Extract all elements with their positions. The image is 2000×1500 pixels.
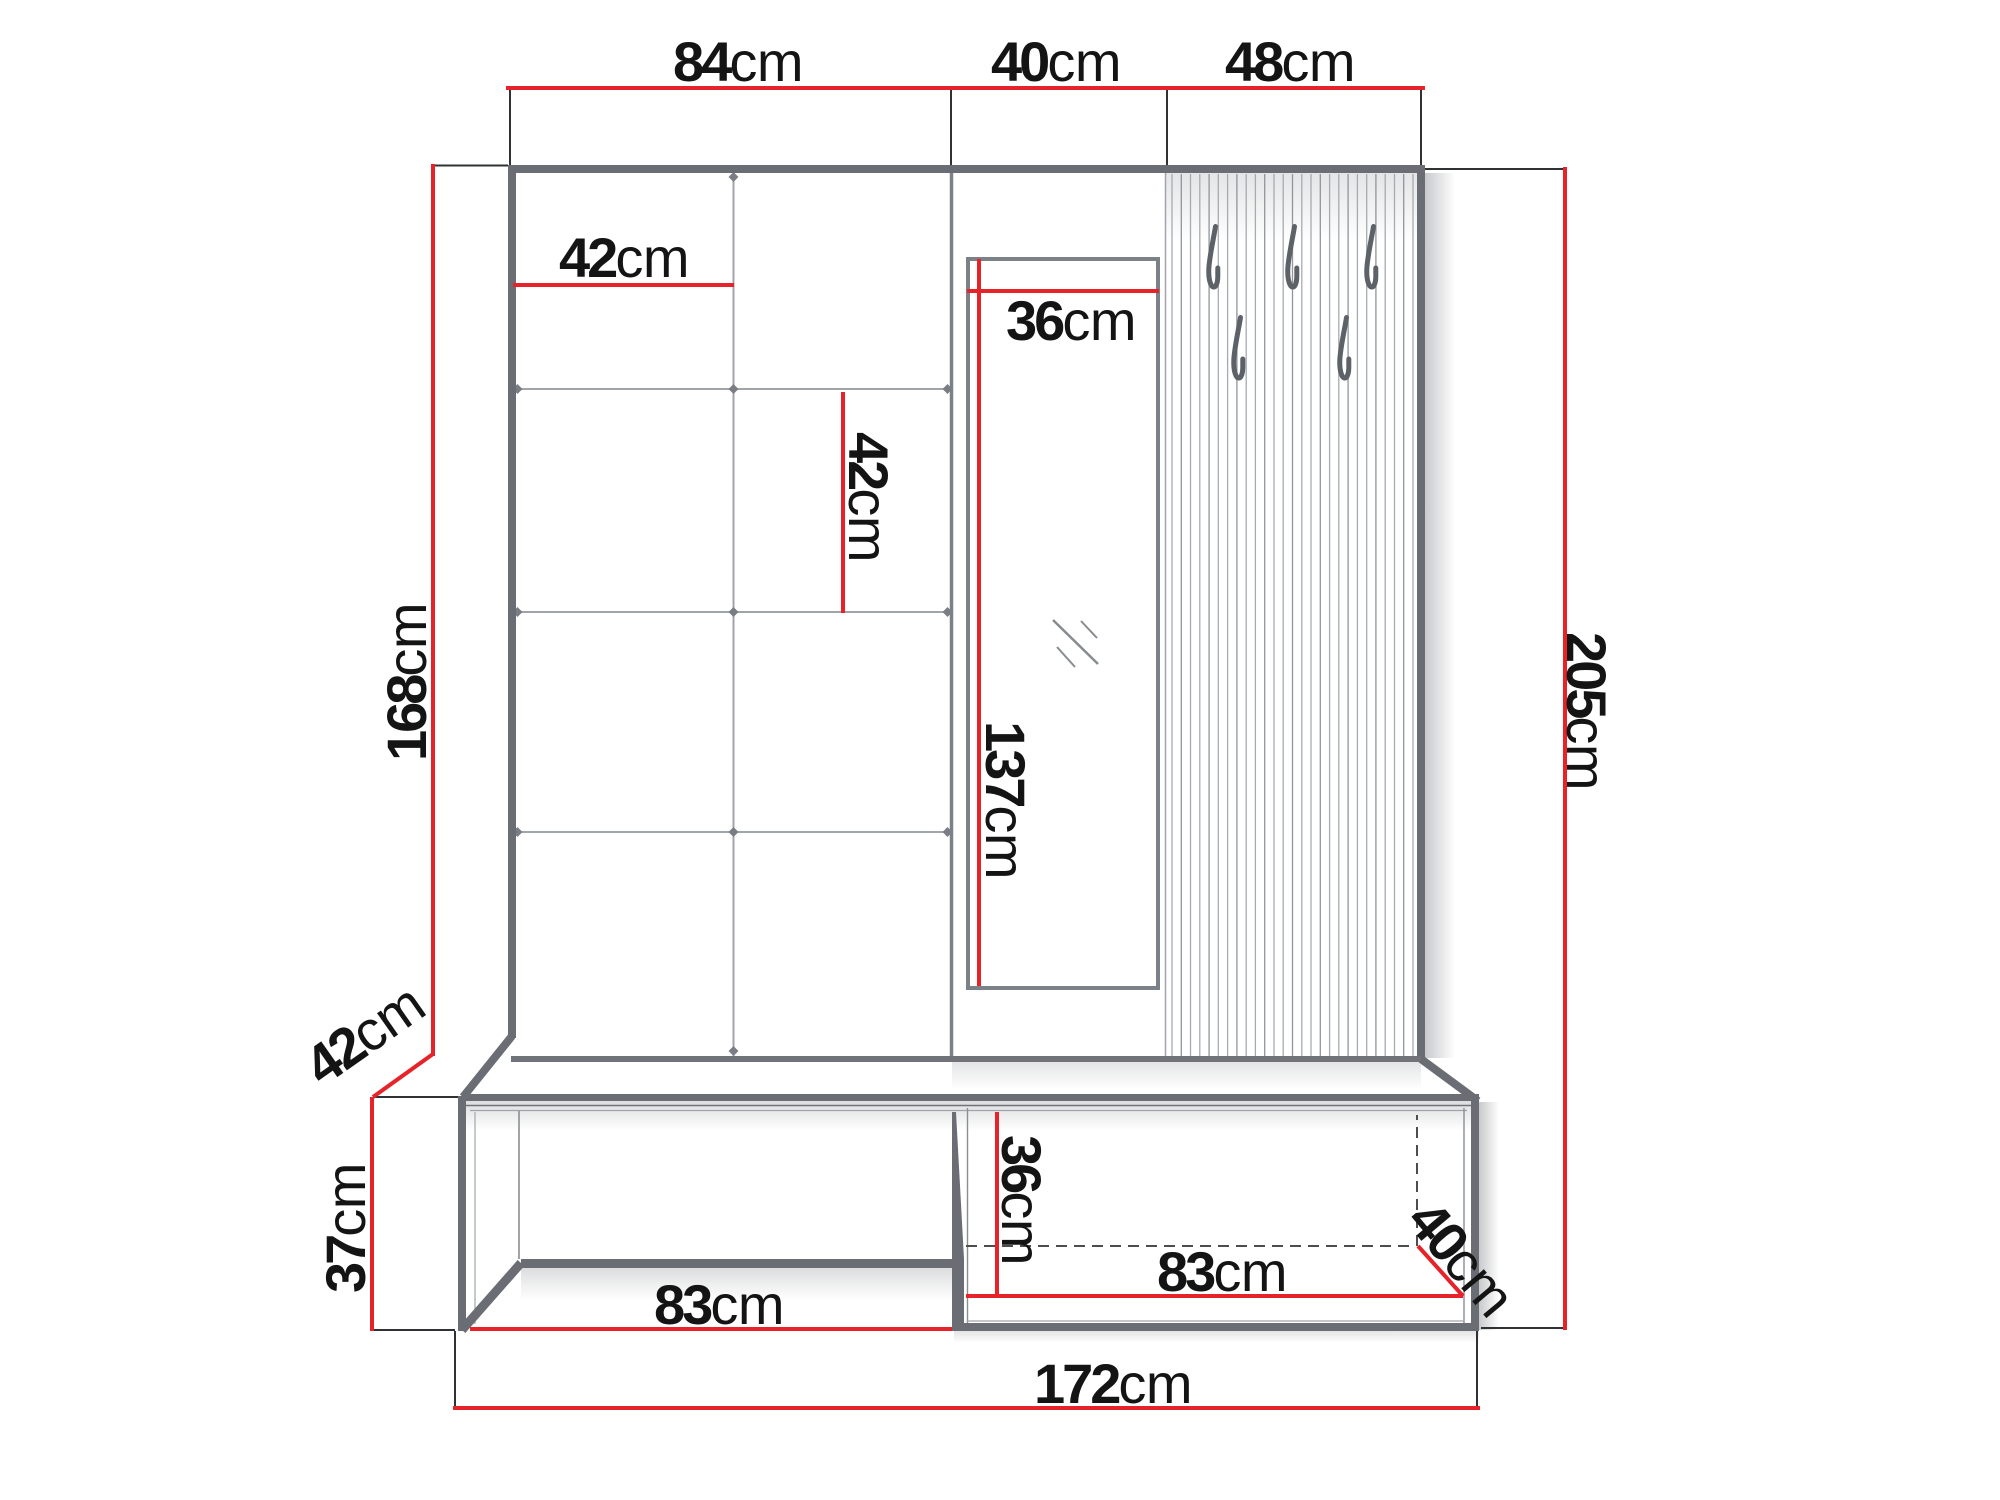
svg-text:48cm: 48cm	[1225, 30, 1355, 93]
svg-text:83cm: 83cm	[1157, 1240, 1287, 1303]
svg-text:42cm: 42cm	[559, 226, 689, 289]
svg-text:36cm: 36cm	[1006, 289, 1136, 352]
svg-text:83cm: 83cm	[654, 1273, 784, 1336]
svg-text:172cm: 172cm	[1034, 1352, 1192, 1415]
svg-text:37cm: 37cm	[314, 1163, 377, 1293]
svg-text:168cm: 168cm	[375, 603, 438, 761]
svg-text:42cm: 42cm	[837, 432, 900, 562]
svg-text:40cm: 40cm	[991, 30, 1121, 93]
svg-text:137cm: 137cm	[974, 721, 1037, 879]
svg-text:205cm: 205cm	[1555, 632, 1618, 790]
svg-text:36cm: 36cm	[990, 1135, 1053, 1265]
svg-text:84cm: 84cm	[673, 30, 803, 93]
